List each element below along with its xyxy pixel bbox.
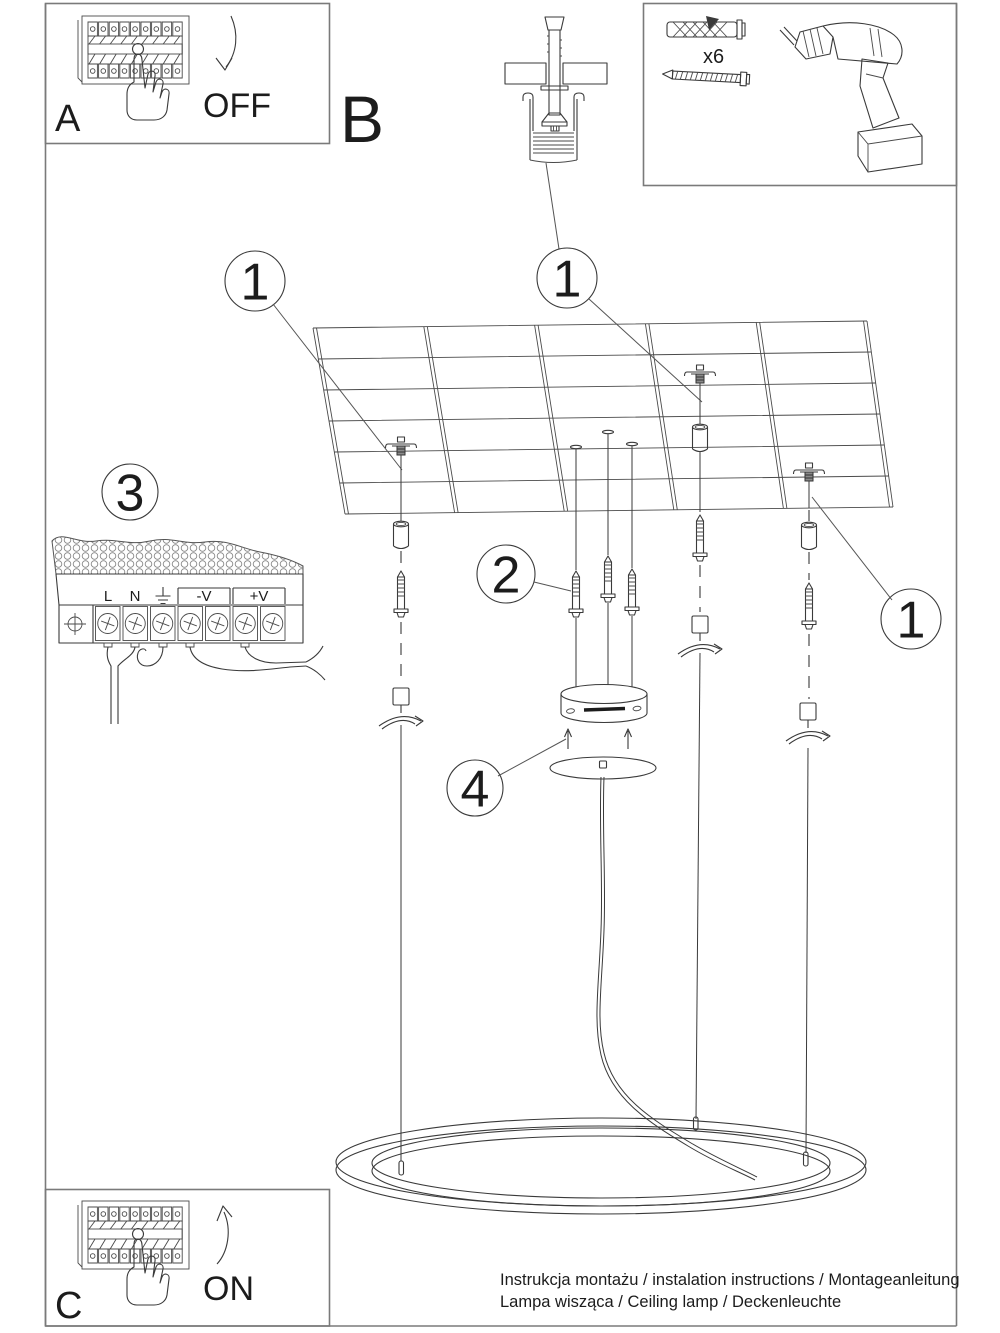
svg-text:4: 4: [461, 761, 490, 819]
svg-text:1: 1: [897, 592, 926, 650]
canopy-screw: [601, 556, 615, 602]
parts-box: x6: [644, 4, 957, 186]
output-wires: [190, 646, 325, 680]
terminal-label-negative: -V: [197, 588, 212, 605]
svg-text:1: 1: [553, 251, 582, 309]
suspension-chain-right: [786, 463, 830, 1153]
off-caption: OFF: [203, 87, 271, 125]
leader-canopy: [498, 739, 566, 776]
canopy: [561, 685, 647, 750]
switch-on-arrow-icon: [217, 1206, 232, 1264]
terminal-label-positive: +V: [250, 588, 269, 605]
suspended-ceiling-grid: [313, 321, 893, 514]
footer-line1: Instrukcja montażu / instalation instruc…: [500, 1271, 960, 1289]
step-c-panel: ON C: [46, 1190, 330, 1328]
leader-screws: [534, 582, 571, 591]
anchor-fixture: [685, 365, 716, 383]
step-b-label: B: [340, 82, 384, 156]
step-a-label: A: [55, 98, 81, 140]
parts-box-border: [644, 4, 957, 186]
callout-canopy: 4: [447, 760, 503, 819]
callout-power-supply: 3: [102, 464, 158, 523]
canopy-screw: [569, 571, 583, 617]
svg-text:3: 3: [116, 465, 145, 523]
step-a-panel: OFF A: [46, 4, 330, 144]
cable-gripper: [678, 616, 722, 657]
on-caption: ON: [203, 1270, 254, 1308]
terminal-screws: [96, 607, 286, 641]
anchor-fixture: [794, 463, 825, 481]
perforated-cover: [52, 537, 303, 574]
step-c-label: C: [55, 1285, 82, 1327]
callout-ceiling-plug-left: 1: [225, 251, 285, 312]
terminal-label-live: L: [104, 588, 112, 605]
instruction-sheet: OFF A B: [0, 0, 1000, 1333]
ceiling-anchor-detail: [505, 17, 607, 249]
voltage-brackets: [178, 588, 285, 604]
wire-clamps: [104, 643, 249, 647]
suspension-chain-left: [379, 437, 423, 1161]
drill-icon: [780, 23, 922, 172]
screw-icon: [662, 68, 750, 86]
svg-text:1: 1: [241, 254, 270, 312]
leader-left: [273, 304, 402, 470]
svg-text:2: 2: [492, 547, 521, 605]
earth-ground-icon: [156, 587, 171, 604]
page-frame: [46, 4, 957, 1327]
ceiling-slab-left: [505, 63, 546, 84]
ring-cable-pin: [399, 1161, 404, 1175]
cable-gripper: [379, 688, 423, 729]
wall-plug: [394, 521, 409, 548]
callout-mounting-screws: 2: [477, 545, 535, 605]
alignment-crosshair-icon: [64, 613, 86, 635]
callout-ceiling-plug-top: 1: [537, 248, 597, 309]
canopy-mounting-screws: [569, 430, 639, 687]
cable-gripper: [786, 703, 830, 744]
mains-wires: [107, 647, 163, 724]
leader-anchor-to-callout: [546, 163, 559, 249]
power-supply-unit: L N -V +V: [52, 537, 325, 724]
mounting-screw: [693, 515, 707, 561]
ceiling-slab-right: [563, 63, 607, 84]
grid-pin: [571, 430, 638, 570]
anchor-quantity: x6: [703, 46, 724, 68]
ring-cable-pin: [804, 1152, 809, 1166]
up-arrow-icon: [565, 729, 632, 749]
canopy-slot: [584, 709, 625, 711]
wall-plug-icon: [667, 20, 745, 39]
ceiling-cover-disc: [550, 757, 656, 779]
anchor-fixture: [386, 437, 417, 455]
footer-line2: Lampa wisząca / Ceiling lamp / Deckenleu…: [500, 1293, 841, 1311]
leader-right: [812, 497, 892, 600]
mounting-screw: [394, 571, 408, 617]
terminal-label-neutral: N: [130, 588, 141, 605]
footer: Instrukcja montażu / instalation instruc…: [500, 1271, 960, 1311]
mounting-screw: [802, 583, 816, 629]
switch-off-arrow-icon: [216, 16, 236, 70]
canopy-screw: [625, 569, 639, 615]
lamp-ring: [336, 1117, 866, 1214]
wall-plug: [802, 522, 817, 549]
anchor-screw: [541, 17, 568, 131]
